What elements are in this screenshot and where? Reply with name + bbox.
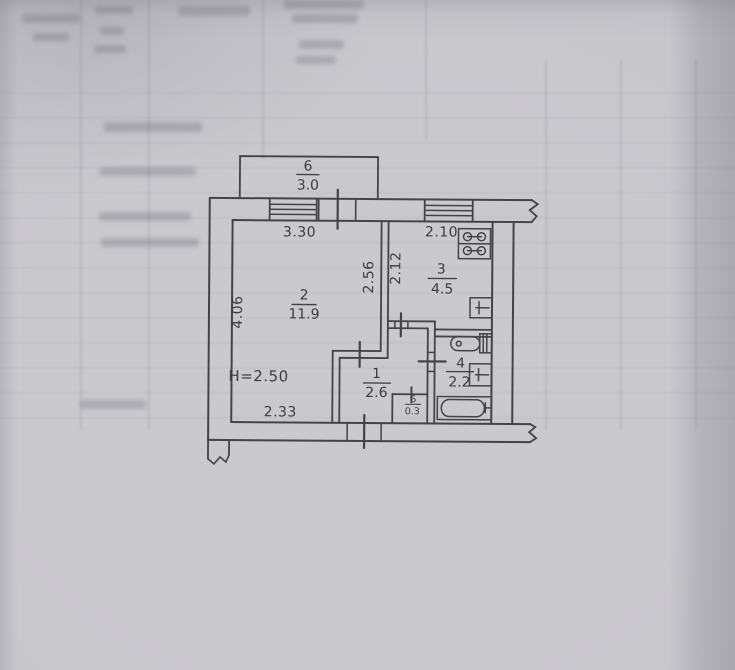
dim-room2-bottom: 2.33 [264, 404, 297, 420]
room-bathroom-number: 4 [456, 356, 465, 372]
dim-room2-right: 2.56 [361, 260, 377, 293]
room-living-number: 2 [300, 288, 309, 304]
wall-break-icon [530, 200, 538, 222]
room-closet-area: 0.3 [405, 406, 420, 417]
dim-kitchen-top: 2.10 [425, 224, 458, 240]
bathtub-icon [437, 396, 491, 419]
room-closet-number: 5 [410, 394, 416, 405]
room-balcony-area: 3.0 [297, 177, 319, 193]
room-bathroom-area: 2.2 [448, 375, 470, 391]
balcony-door-icon [319, 190, 356, 229]
room-balcony-number: 6 [303, 159, 312, 175]
room-kitchen-area: 4.5 [431, 281, 453, 297]
dim-room2-top: 3.30 [283, 224, 316, 240]
dim-kitchen-left: 2.12 [388, 252, 404, 285]
stove-icon [458, 229, 490, 259]
room-hallway-number: 1 [372, 366, 381, 382]
wall-break-icon [208, 455, 229, 464]
exterior-walls [208, 198, 538, 466]
floor-plan-svg: 6 3.0 2 11.9 3 4.5 1 2.6 4 2.2 5 0.3 3.3… [0, 0, 735, 670]
window-icon [425, 199, 473, 221]
dim-room2-left: 4.06 [230, 295, 246, 328]
room-living-area: 11.9 [288, 306, 319, 322]
ceiling-height-label: H=2.50 [228, 367, 288, 385]
window-icon [270, 198, 317, 220]
room-hallway-area: 2.6 [365, 385, 387, 401]
photographed-floor-plan-page: { "page": { "description": "Photograph o… [0, 0, 735, 670]
kitchen-sink-icon [470, 298, 492, 318]
room-kitchen-number: 3 [437, 261, 446, 277]
washbasin-icon [469, 364, 491, 386]
wall-break-icon [529, 424, 536, 442]
